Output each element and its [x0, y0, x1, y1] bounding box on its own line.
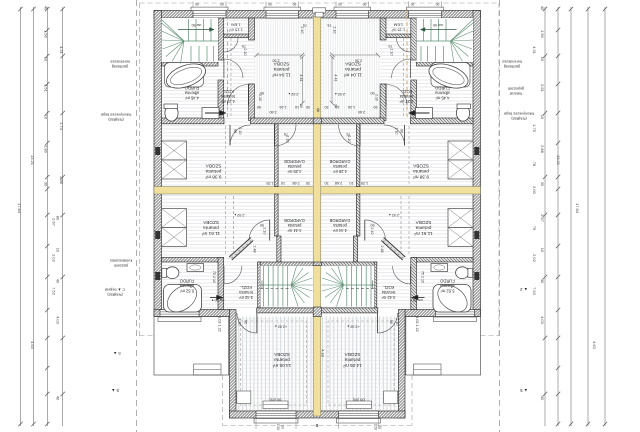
svg-text:uw 90 ▾: uw 90 ▾ [410, 298, 423, 302]
svg-text:5.52 m²: 5.52 m² [179, 289, 194, 294]
svg-text:uw 90: uw 90 [433, 23, 443, 27]
svg-text:30: 30 [540, 182, 545, 187]
svg-text:50: 50 [268, 2, 272, 6]
svg-text:2.10: 2.10 [390, 48, 394, 55]
svg-text:90: 90 [233, 129, 237, 133]
svg-text:-2.92 ▴: -2.92 ▴ [389, 213, 400, 217]
svg-text:2.10: 2.10 [395, 127, 399, 134]
svg-text:2.50: 2.50 [355, 59, 362, 63]
svg-text:90: 90 [257, 105, 261, 109]
svg-text:2.68: 2.68 [335, 181, 342, 185]
svg-text:4.45 m²: 4.45 m² [435, 96, 450, 101]
svg-text:14.05 m²: 14.05 m² [343, 363, 362, 368]
svg-text:2.10: 2.10 [286, 135, 290, 142]
svg-text:2.10: 2.10 [375, 94, 379, 101]
svg-text:FURDO: FURDO [440, 278, 455, 283]
svg-text:90: 90 [244, 320, 248, 324]
svg-text:GARDROB: GARDROB [284, 218, 305, 223]
svg-text:1.50: 1.50 [540, 30, 545, 39]
svg-text:tenanta: tenanta [399, 94, 413, 99]
svg-text:SZOBA: SZOBA [273, 352, 290, 357]
svg-text:17.84: 17.84 [17, 203, 22, 214]
svg-text:FURDO: FURDO [435, 85, 450, 90]
svg-text:2.48: 2.48 [253, 245, 257, 252]
svg-text:90: 90 [400, 129, 404, 133]
svg-text:4.03: 4.03 [56, 316, 61, 325]
svg-text:petanta: petanta [274, 358, 290, 363]
svg-text:1.75: 1.75 [532, 124, 537, 133]
svg-text:2.02: 2.02 [52, 254, 57, 263]
svg-text:SZOBA: SZOBA [344, 352, 361, 357]
svg-text:4.63: 4.63 [30, 341, 35, 350]
svg-text:fokonyvezes bejar: fokonyvezes bejar [100, 113, 131, 117]
svg-text:30: 30 [306, 181, 310, 185]
svg-text:Db (ml): Db (ml) [353, 398, 365, 402]
svg-text:gepeszeti: gepeszeti [508, 87, 524, 91]
svg-text:4.29 m²: 4.29 m² [332, 169, 347, 174]
svg-text:11.04 m²: 11.04 m² [272, 73, 291, 78]
svg-text:2.10: 2.10 [238, 127, 242, 134]
svg-text:B: B [315, 423, 318, 428]
svg-text:90: 90 [363, 2, 367, 6]
svg-text:10: 10 [56, 248, 61, 253]
svg-text:gazdasag: gazdasag [504, 64, 520, 68]
svg-text:2.10: 2.10 [300, 26, 304, 33]
svg-text:40: 40 [44, 6, 49, 11]
svg-text:10: 10 [295, 105, 299, 109]
svg-text:40: 40 [56, 279, 61, 284]
svg-text:1.15 m²: 1.15 m² [229, 28, 243, 33]
svg-text:2.48: 2.48 [380, 245, 384, 252]
svg-text:90: 90 [281, 425, 285, 429]
svg-text:KOZL.: KOZL. [222, 89, 234, 94]
svg-text:FURDO: FURDO [185, 85, 200, 90]
svg-text:+2.92 ▴: +2.92 ▴ [347, 325, 359, 329]
svg-text:13.21: 13.21 [30, 155, 35, 166]
svg-text:40: 40 [540, 396, 545, 401]
svg-text:4.27 m²: 4.27 m² [220, 99, 235, 104]
svg-text:SZOBA: SZOBA [202, 220, 219, 225]
svg-text:2.10: 2.10 [258, 94, 262, 101]
svg-text:9.38 m²: 9.38 m² [205, 175, 221, 180]
svg-text:albenna: albenna [434, 91, 449, 96]
svg-text:GARDROB: GARDROB [329, 159, 350, 164]
svg-text:C ▲ bejarat: C ▲ bejarat [104, 288, 125, 292]
svg-text:GARDROB: GARDROB [284, 159, 305, 164]
svg-text:4.31: 4.31 [532, 46, 537, 55]
svg-text:GARDROB: GARDROB [329, 218, 350, 223]
svg-text:albenna: albenna [184, 91, 199, 96]
svg-text:uw 90: uw 90 [192, 23, 202, 27]
svg-text:petanta: petanta [205, 169, 221, 174]
svg-text:tenanta: tenanta [238, 290, 252, 295]
svg-text:Db (ml): Db (ml) [269, 398, 281, 402]
svg-text:90: 90 [373, 105, 377, 109]
svg-text:2.60: 2.60 [269, 110, 276, 114]
svg-text:1.25: 1.25 [266, 181, 273, 185]
svg-text:-2.92 ▴: -2.92 ▴ [335, 92, 346, 96]
svg-text:tenanta: tenanta [381, 290, 395, 295]
svg-text:2.10: 2.10 [370, 227, 374, 234]
svg-text:2.00: 2.00 [532, 186, 537, 195]
svg-text:4.41: 4.41 [299, 74, 303, 81]
svg-text:10: 10 [540, 115, 545, 120]
svg-text:3.42 m²: 3.42 m² [238, 295, 253, 300]
svg-text:3.42 m²: 3.42 m² [381, 295, 396, 300]
svg-text:2.86: 2.86 [59, 176, 64, 185]
svg-text:9.38 m²: 9.38 m² [413, 175, 429, 180]
svg-text:5.52 m²: 5.52 m² [440, 289, 455, 294]
svg-text:petanta: petanta [203, 226, 219, 231]
svg-text:uw 90 ▾: uw 90 ▾ [211, 298, 224, 302]
svg-text:90: 90 [220, 2, 224, 6]
svg-text:▲ 5: ▲ 5 [520, 388, 528, 393]
svg-text:1.EM: 1.EM [394, 23, 403, 28]
svg-text:2.60: 2.60 [358, 110, 365, 114]
svg-text:B: B [316, 108, 319, 113]
svg-text:75 2.10: 75 2.10 [421, 271, 425, 283]
svg-text:75: 75 [388, 44, 392, 48]
svg-text:petanta: petanta [287, 223, 301, 228]
svg-text:(felujitas): (felujitas) [107, 292, 123, 296]
svg-text:1.26: 1.26 [348, 105, 355, 109]
svg-text:40: 40 [56, 396, 61, 401]
svg-text:50: 50 [411, 2, 415, 6]
svg-text:90: 90 [378, 425, 382, 429]
svg-text:4.44 m²: 4.44 m² [332, 228, 347, 233]
svg-text:13.21: 13.21 [556, 155, 561, 166]
svg-text:10: 10 [44, 57, 49, 62]
svg-text:kerelmezes: kerelmezes [110, 60, 130, 64]
svg-text:79: 79 [532, 226, 537, 231]
svg-text:40: 40 [540, 279, 545, 284]
svg-text:KOZL.: KOZL. [401, 89, 413, 94]
svg-text:2.10: 2.10 [395, 318, 399, 325]
svg-text:gazdasag: gazdasag [112, 64, 128, 68]
svg-text:korlatvezetes: korlatvezetes [110, 259, 132, 263]
svg-text:2.10: 2.10 [347, 135, 351, 142]
svg-text:FURDO: FURDO [180, 278, 195, 283]
svg-text:30: 30 [306, 105, 310, 109]
svg-text:90: 90 [436, 2, 440, 6]
svg-text:petanta: petanta [273, 67, 289, 72]
svg-text:-2.92 ▴: -2.92 ▴ [234, 213, 245, 217]
svg-text:75: 75 [327, 23, 331, 27]
svg-text:1.03 1.22: 1.03 1.22 [218, 316, 222, 331]
svg-text:50: 50 [195, 2, 199, 6]
svg-text:2.50: 2.50 [272, 59, 279, 63]
svg-text:4.44 m²: 4.44 m² [287, 228, 302, 233]
svg-text:4.23: 4.23 [321, 349, 325, 356]
svg-text:5 ▲: 5 ▲ [111, 388, 119, 393]
svg-text:S ▲: S ▲ [113, 351, 121, 356]
svg-text:7.93: 7.93 [532, 287, 537, 296]
svg-text:1.25: 1.25 [361, 181, 368, 185]
svg-text:4.31: 4.31 [59, 46, 64, 55]
svg-text:albenna: albenna [179, 284, 194, 289]
svg-text:SZOBA: SZOBA [205, 163, 222, 168]
svg-text:+2.92 ▴: +2.92 ▴ [275, 325, 287, 329]
svg-text:1.26: 1.26 [279, 105, 286, 109]
svg-text:2.51: 2.51 [44, 84, 49, 93]
svg-text:11.61 m²: 11.61 m² [414, 231, 433, 236]
svg-text:petanta: petanta [413, 169, 429, 174]
svg-text:tenanta: tenanta [220, 94, 234, 99]
svg-text:2.02: 2.02 [532, 254, 537, 263]
svg-text:40: 40 [540, 6, 545, 11]
svg-text:10: 10 [540, 248, 545, 253]
svg-text:1.03 1.22: 1.03 1.22 [415, 316, 419, 331]
svg-text:10: 10 [540, 57, 545, 62]
svg-text:fokonyvezes bejar: fokonyvezes bejar [503, 112, 534, 116]
svg-text:SZOBA: SZOBA [412, 163, 429, 168]
svg-text:7.52: 7.52 [52, 287, 57, 296]
svg-text:90: 90 [370, 91, 374, 95]
svg-text:10: 10 [44, 115, 49, 120]
svg-text:1.15 m²: 1.15 m² [391, 28, 405, 33]
svg-text:jaszarok: jaszarok [114, 263, 129, 267]
svg-text:(felujitas): (felujitas) [108, 117, 124, 121]
svg-text:75 2.10: 75 2.10 [212, 271, 216, 283]
svg-text:KOZL.: KOZL. [383, 285, 395, 290]
svg-text:90: 90 [293, 2, 297, 6]
svg-text:2.67: 2.67 [540, 214, 545, 223]
svg-text:30: 30 [324, 105, 328, 109]
svg-text:2.80: 2.80 [44, 145, 49, 154]
svg-text:2.10: 2.10 [243, 48, 247, 55]
svg-text:(felujitas): (felujitas) [511, 116, 527, 120]
svg-text:30: 30 [334, 104, 338, 108]
svg-text:1.50: 1.50 [44, 30, 49, 39]
svg-text:albenna: albenna [439, 284, 454, 289]
svg-text:11.04 m²: 11.04 m² [343, 73, 362, 78]
svg-text:2.67: 2.67 [52, 218, 57, 227]
svg-text:30: 30 [324, 181, 328, 185]
svg-text:4.29 m²: 4.29 m² [287, 169, 302, 174]
svg-text:90: 90 [370, 223, 374, 227]
svg-text:-2.92 ▴: -2.92 ▴ [288, 92, 299, 96]
svg-text:11.61 m²: 11.61 m² [201, 231, 220, 236]
svg-text:4.41: 4.41 [334, 74, 338, 81]
svg-text:50: 50 [338, 2, 342, 6]
svg-text:10: 10 [281, 181, 285, 185]
svg-text:2.68: 2.68 [292, 181, 299, 185]
svg-text:30: 30 [44, 182, 49, 187]
svg-text:4.27 m²: 4.27 m² [399, 99, 414, 104]
svg-text:1.50: 1.50 [276, 424, 280, 431]
svg-text:90: 90 [260, 223, 264, 227]
svg-text:4.45 m²: 4.45 m² [184, 96, 199, 101]
svg-text:78: 78 [532, 162, 537, 167]
svg-text:1.74: 1.74 [59, 122, 64, 131]
svg-text:17.84: 17.84 [575, 203, 580, 214]
svg-text:14.05 m²: 14.05 m² [272, 363, 291, 368]
svg-text:4.03: 4.03 [540, 316, 545, 325]
svg-text:75: 75 [242, 44, 246, 48]
svg-text:berendezes: berendezes [502, 60, 522, 64]
svg-text:4.63: 4.63 [592, 341, 597, 350]
svg-text:10: 10 [349, 181, 353, 185]
svg-text:2.10: 2.10 [333, 26, 337, 33]
svg-text:2.10: 2.10 [263, 227, 267, 234]
svg-text:petanta: petanta [287, 164, 301, 169]
svg-text:petanta: petanta [415, 226, 431, 231]
svg-text:1.EM: 1.EM [231, 23, 240, 28]
svg-text:2.88: 2.88 [540, 145, 545, 154]
svg-text:petanta: petanta [344, 358, 360, 363]
svg-text:petanta: petanta [332, 223, 346, 228]
svg-text:2.51: 2.51 [540, 84, 545, 93]
svg-text:petanta: petanta [332, 164, 346, 169]
svg-text:petanta: petanta [345, 67, 361, 72]
svg-text:90: 90 [389, 320, 393, 324]
svg-text:30: 30 [299, 104, 303, 108]
svg-text:KOZL.: KOZL. [240, 285, 252, 290]
svg-text:SZOBA: SZOBA [415, 220, 432, 225]
svg-text:▲ 2: ▲ 2 [520, 287, 528, 292]
svg-text:1.50: 1.50 [374, 424, 378, 431]
svg-text:2.10: 2.10 [238, 318, 242, 325]
svg-text:halozat: halozat [509, 91, 522, 95]
